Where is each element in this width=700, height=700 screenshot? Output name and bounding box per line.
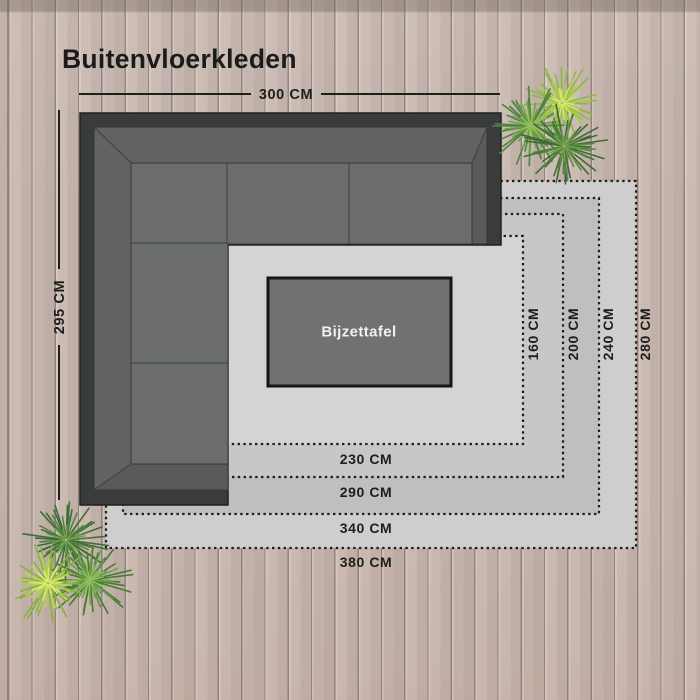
rug-height-label-240: 240 CM [600,308,616,361]
rug-height-label-160: 160 CM [525,308,541,361]
rug-height-label-280: 280 CM [637,308,653,361]
dimension-label-depth: 295 CM [52,280,68,334]
rug-width-label-340: 340 CM [340,520,393,536]
sofa-backrest-top [94,127,487,163]
rug-width-label-380: 380 CM [340,554,393,570]
dimension-label-width: 300 CM [259,87,313,103]
side-table-label: Bijzettafel [321,324,396,341]
rug-size-diagram: Bijzettafel 380 CM 340 CM 290 CM 230 CM … [0,0,700,700]
floorplan-svg: Bijzettafel 380 CM 340 CM 290 CM 230 CM … [0,0,700,700]
rug-width-label-230: 230 CM [340,451,393,467]
plant-icon-top-right [493,67,608,184]
rug-height-label-200: 200 CM [565,308,581,361]
sofa-backrest-left [94,127,131,490]
rug-width-label-290: 290 CM [340,484,393,500]
page-title: Buitenvloerkleden [62,44,297,74]
